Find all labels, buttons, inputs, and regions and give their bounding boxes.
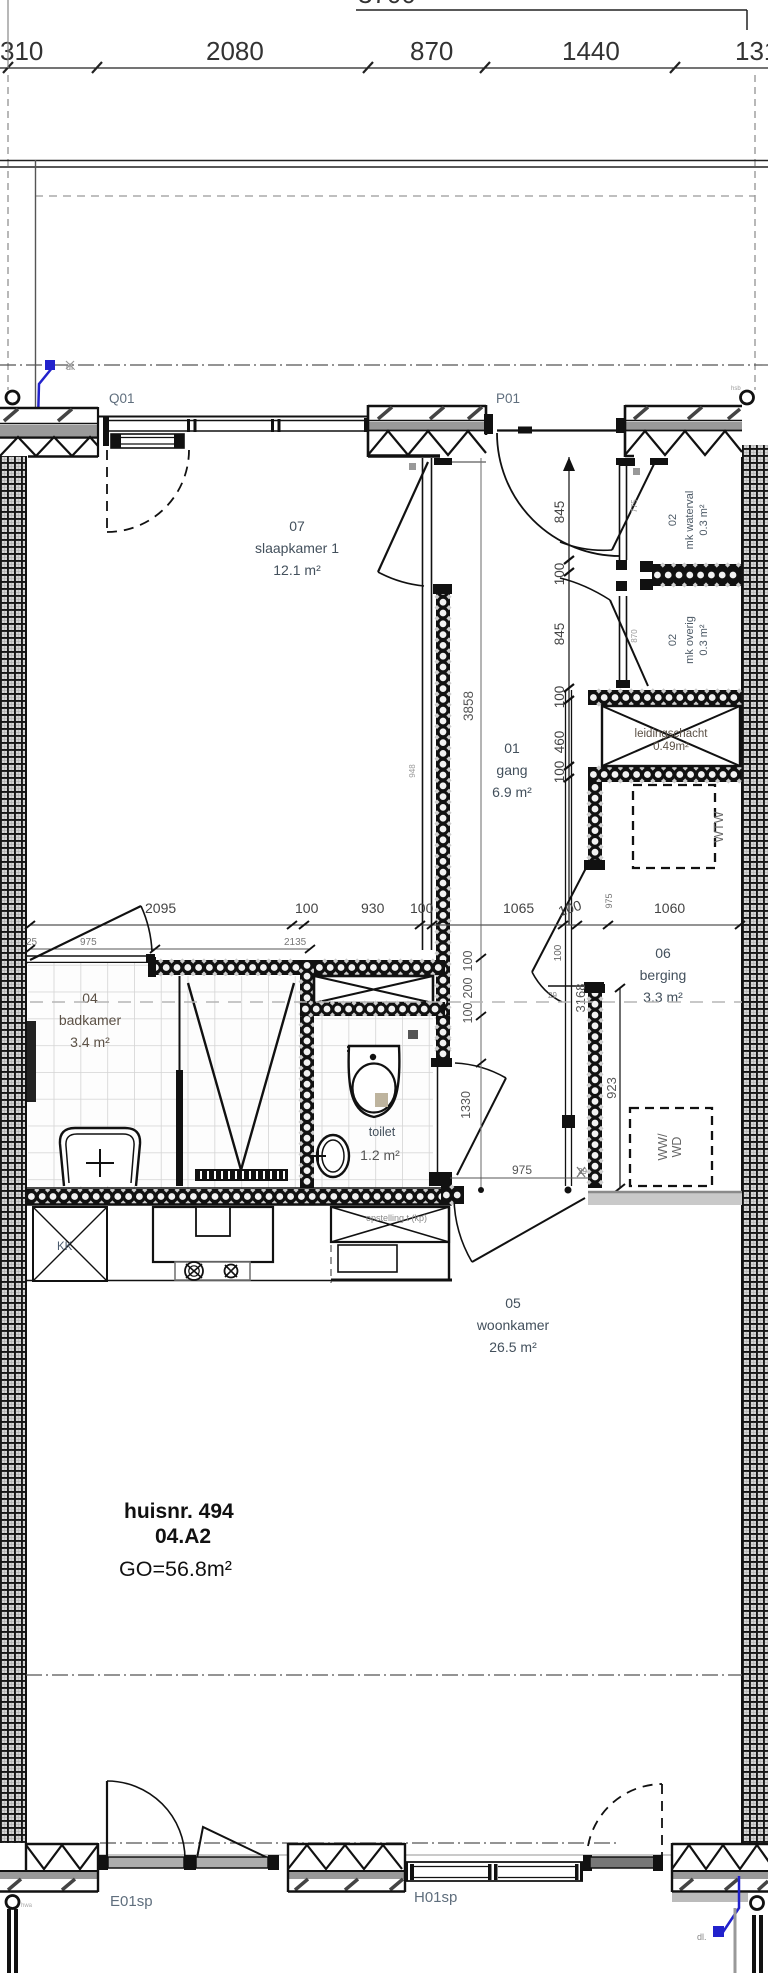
svg-text:29: 29 [578,1167,587,1176]
svg-text:badkamer: badkamer [59,1012,122,1028]
svg-text:3168: 3168 [573,984,588,1013]
svg-text:1065: 1065 [503,900,534,916]
svg-text:hsb: hsb [731,386,741,392]
svg-text:slaapkamer 1: slaapkamer 1 [255,540,339,556]
svg-text:leidingschacht: leidingschacht [635,728,709,740]
svg-text:0.3 m²: 0.3 m² [698,504,710,536]
svg-text:1310: 1310 [735,36,768,66]
svg-text:07: 07 [289,518,305,534]
svg-text:845: 845 [552,501,567,524]
svg-text:100: 100 [461,1003,475,1024]
svg-text:berging: berging [640,967,687,983]
svg-text:845: 845 [552,623,567,646]
svg-text:2095: 2095 [145,900,176,916]
svg-text:04: 04 [82,990,98,1006]
svg-text:02: 02 [667,514,679,526]
svg-text:26.5 m²: 26.5 m² [489,1339,537,1355]
svg-text:H01sp: H01sp [414,1889,457,1906]
svg-text:100: 100 [295,900,319,916]
svg-text:0.3 m²: 0.3 m² [698,624,710,656]
svg-text:WD: WD [670,1137,684,1158]
svg-text:woonkamer: woonkamer [476,1317,550,1333]
svg-text:975: 975 [80,937,97,948]
svg-text:opstelling t (kp): opstelling t (kp) [366,1213,427,1223]
svg-text:12.1 m²: 12.1 m² [273,562,321,578]
svg-text:948: 948 [408,764,417,778]
svg-text:E01sp: E01sp [110,1893,153,1910]
svg-text:200: 200 [461,978,475,999]
svg-text:870: 870 [410,36,453,66]
svg-text:1.2 m²: 1.2 m² [360,1147,400,1163]
svg-text:2135: 2135 [284,937,307,948]
svg-text:mk overig: mk overig [684,616,696,664]
svg-text:870: 870 [630,629,639,643]
svg-text:WTW: WTW [712,811,726,842]
svg-text:6.9 m²: 6.9 m² [492,784,532,800]
svg-text:100: 100 [461,951,475,972]
svg-text:huisnr. 494: huisnr. 494 [124,1500,234,1523]
svg-text:02: 02 [667,634,679,646]
svg-text:100: 100 [552,761,567,784]
svg-text:3.4 m²: 3.4 m² [70,1034,110,1050]
svg-text:gang: gang [496,762,527,778]
svg-text:3858: 3858 [461,691,476,721]
svg-text:100: 100 [410,900,434,916]
svg-text:dl.: dl. [697,1932,707,1942]
svg-text:GO=56.8m²: GO=56.8m² [119,1557,232,1581]
svg-text:25: 25 [26,937,38,948]
svg-text:01: 01 [504,740,520,756]
svg-text:3700: 3700 [358,0,416,9]
svg-text:04.A2: 04.A2 [155,1525,211,1548]
svg-text:1440: 1440 [562,36,620,66]
svg-text:05: 05 [505,1295,521,1311]
svg-text:975: 975 [604,893,614,908]
svg-text:1330: 1330 [459,1091,473,1119]
svg-text:2080: 2080 [206,36,264,66]
svg-text:100: 100 [552,686,567,709]
svg-text:KK: KK [57,1241,73,1253]
svg-text:Q01: Q01 [109,391,135,406]
svg-text:460: 460 [552,731,567,754]
svg-text:0.49m²: 0.49m² [653,741,689,753]
svg-text:P01: P01 [496,391,520,406]
svg-text:975: 975 [512,1163,532,1177]
svg-text:mk waterval: mk waterval [684,491,696,550]
svg-text:1060: 1060 [654,900,685,916]
svg-text:hwa: hwa [21,1903,33,1909]
svg-text:775: 775 [630,499,639,513]
svg-text:WW/: WW/ [656,1133,670,1161]
svg-text:06: 06 [655,945,671,961]
svg-text:29: 29 [548,991,557,1000]
svg-text:310: 310 [0,36,43,66]
svg-text:100: 100 [553,944,564,961]
svg-text:930: 930 [361,900,385,916]
svg-text:toilet: toilet [369,1125,396,1139]
svg-text:923: 923 [604,1077,619,1099]
svg-text:100: 100 [552,563,567,586]
